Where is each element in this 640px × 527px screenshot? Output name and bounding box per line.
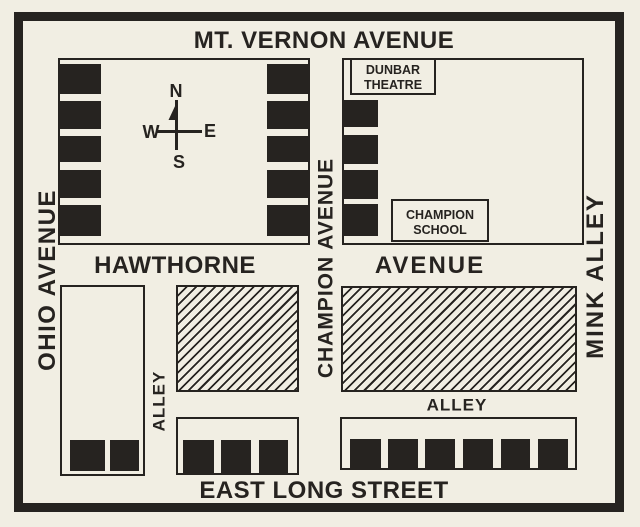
- building: [344, 100, 378, 127]
- street-label-ohio-avenue: OHIO AVENUE: [36, 189, 60, 371]
- building: [388, 439, 418, 468]
- compass-rose: N W E S: [140, 78, 220, 173]
- street-label-mink-alley: MINK ALLEY: [584, 193, 608, 359]
- building: [221, 440, 251, 473]
- building: [60, 101, 101, 129]
- building: [60, 136, 101, 162]
- compass-north-label: N: [170, 81, 183, 101]
- building: [350, 439, 381, 468]
- alley-label-east: ALLEY: [427, 397, 488, 414]
- compass-north-arrow-flag: [169, 104, 177, 120]
- building: [60, 205, 101, 236]
- street-label-hawthorne: HAWTHORNE: [94, 254, 256, 278]
- building: [259, 440, 288, 473]
- dunbar-theatre-name-line2: THEATRE: [352, 78, 434, 93]
- building: [267, 205, 308, 236]
- city-block-southeast: [340, 417, 577, 470]
- compass-west-label: W: [143, 122, 160, 142]
- street-label-avenue: AVENUE: [375, 254, 485, 278]
- city-block-south-middle: [176, 417, 299, 475]
- hatched-lot-east: [341, 286, 577, 392]
- building: [183, 440, 214, 473]
- dunbar-theatre-box: DUNBAR THEATRE: [350, 58, 436, 95]
- building: [267, 170, 308, 198]
- hatched-lot-west: [176, 285, 299, 392]
- champion-school-box: CHAMPION SCHOOL: [391, 199, 489, 242]
- compass-south-label: S: [173, 152, 185, 172]
- dunbar-theatre-name-line1: DUNBAR: [352, 60, 434, 78]
- street-label-mt-vernon-avenue: MT. VERNON AVENUE: [194, 29, 455, 53]
- building: [267, 136, 308, 162]
- building: [60, 170, 101, 198]
- building: [344, 170, 378, 199]
- building: [267, 101, 308, 129]
- compass-east-label: E: [204, 121, 216, 141]
- building: [538, 439, 568, 468]
- building: [267, 64, 308, 94]
- building: [60, 64, 101, 94]
- building: [70, 440, 105, 471]
- building: [110, 440, 139, 471]
- champion-school-name-line2: SCHOOL: [393, 223, 487, 238]
- building: [425, 439, 455, 468]
- building: [463, 439, 493, 468]
- street-label-east-long-street: EAST LONG STREET: [199, 479, 448, 503]
- building: [344, 204, 378, 236]
- building: [344, 135, 378, 164]
- city-block-southwest: [60, 285, 145, 476]
- street-map: MT. VERNON AVENUE N W E S DUNBAR THEATRE: [0, 0, 640, 527]
- street-label-champion-avenue: CHAMPION AVENUE: [316, 158, 337, 378]
- building: [501, 439, 530, 468]
- champion-school-name-line1: CHAMPION: [393, 201, 487, 223]
- alley-label-west: ALLEY: [151, 371, 168, 432]
- city-block-northeast: DUNBAR THEATRE CHAMPION SCHOOL: [342, 58, 584, 245]
